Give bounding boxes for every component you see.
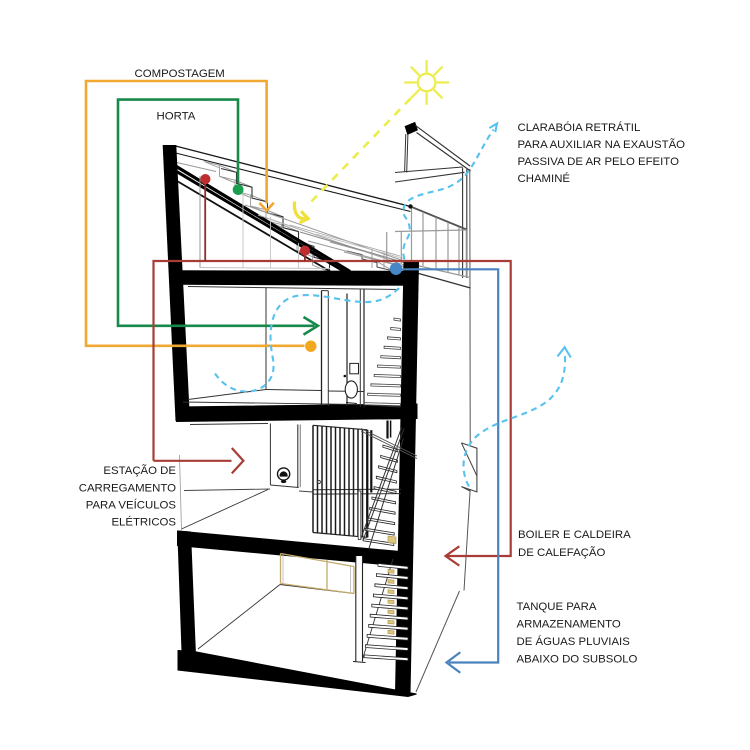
svg-text:COMPOSTAGEM: COMPOSTAGEM (135, 68, 225, 80)
svg-text:ELÉTRICOS: ELÉTRICOS (111, 516, 176, 529)
svg-text:ARMAZENAMENTO: ARMAZENAMENTO (517, 619, 621, 631)
svg-text:HORTA: HORTA (157, 111, 196, 123)
svg-text:PARA VEÍCULOS: PARA VEÍCULOS (86, 499, 177, 512)
svg-text:BOILER E CALDEIRA: BOILER E CALDEIRA (518, 529, 631, 541)
svg-text:DE CALEFAÇÃO: DE CALEFAÇÃO (518, 546, 605, 559)
svg-text:DE ÁGUAS PLUVIAIS: DE ÁGUAS PLUVIAIS (517, 635, 631, 648)
svg-text:ESTAÇÃO DE: ESTAÇÃO DE (103, 464, 176, 477)
svg-text:CLARABÓIA RETRÁTIL: CLARABÓIA RETRÁTIL (518, 121, 641, 134)
svg-text:PASSIVA DE AR PELO EFEITO: PASSIVA DE AR PELO EFEITO (518, 156, 680, 168)
svg-text:CARREGAMENTO: CARREGAMENTO (79, 483, 176, 495)
svg-text:PARA AUXILIAR NA EXAUSTÃO: PARA AUXILIAR NA EXAUSTÃO (518, 138, 686, 151)
svg-text:TANQUE PARA: TANQUE PARA (517, 601, 597, 613)
svg-text:CHAMINÉ: CHAMINÉ (518, 172, 571, 185)
svg-text:ABAIXO DO SUBSOLO: ABAIXO DO SUBSOLO (517, 654, 638, 666)
